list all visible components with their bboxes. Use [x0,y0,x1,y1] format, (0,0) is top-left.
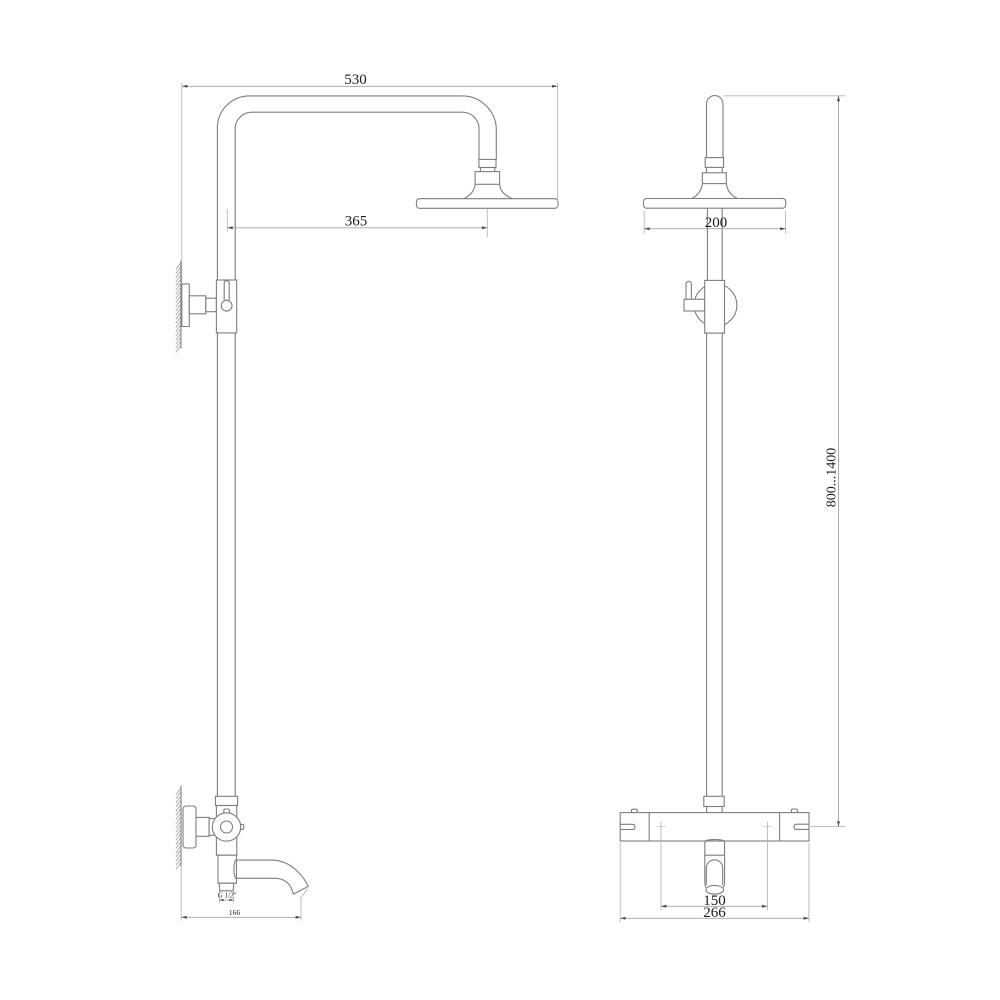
svg-text:530: 530 [344,72,367,88]
svg-text:166: 166 [229,908,241,917]
svg-text:200: 200 [705,215,728,231]
svg-text:266: 266 [703,905,726,921]
svg-text:G 1/2″: G 1/2″ [218,892,237,900]
svg-text:800...1400: 800...1400 [825,448,840,508]
svg-text:365: 365 [345,213,368,229]
